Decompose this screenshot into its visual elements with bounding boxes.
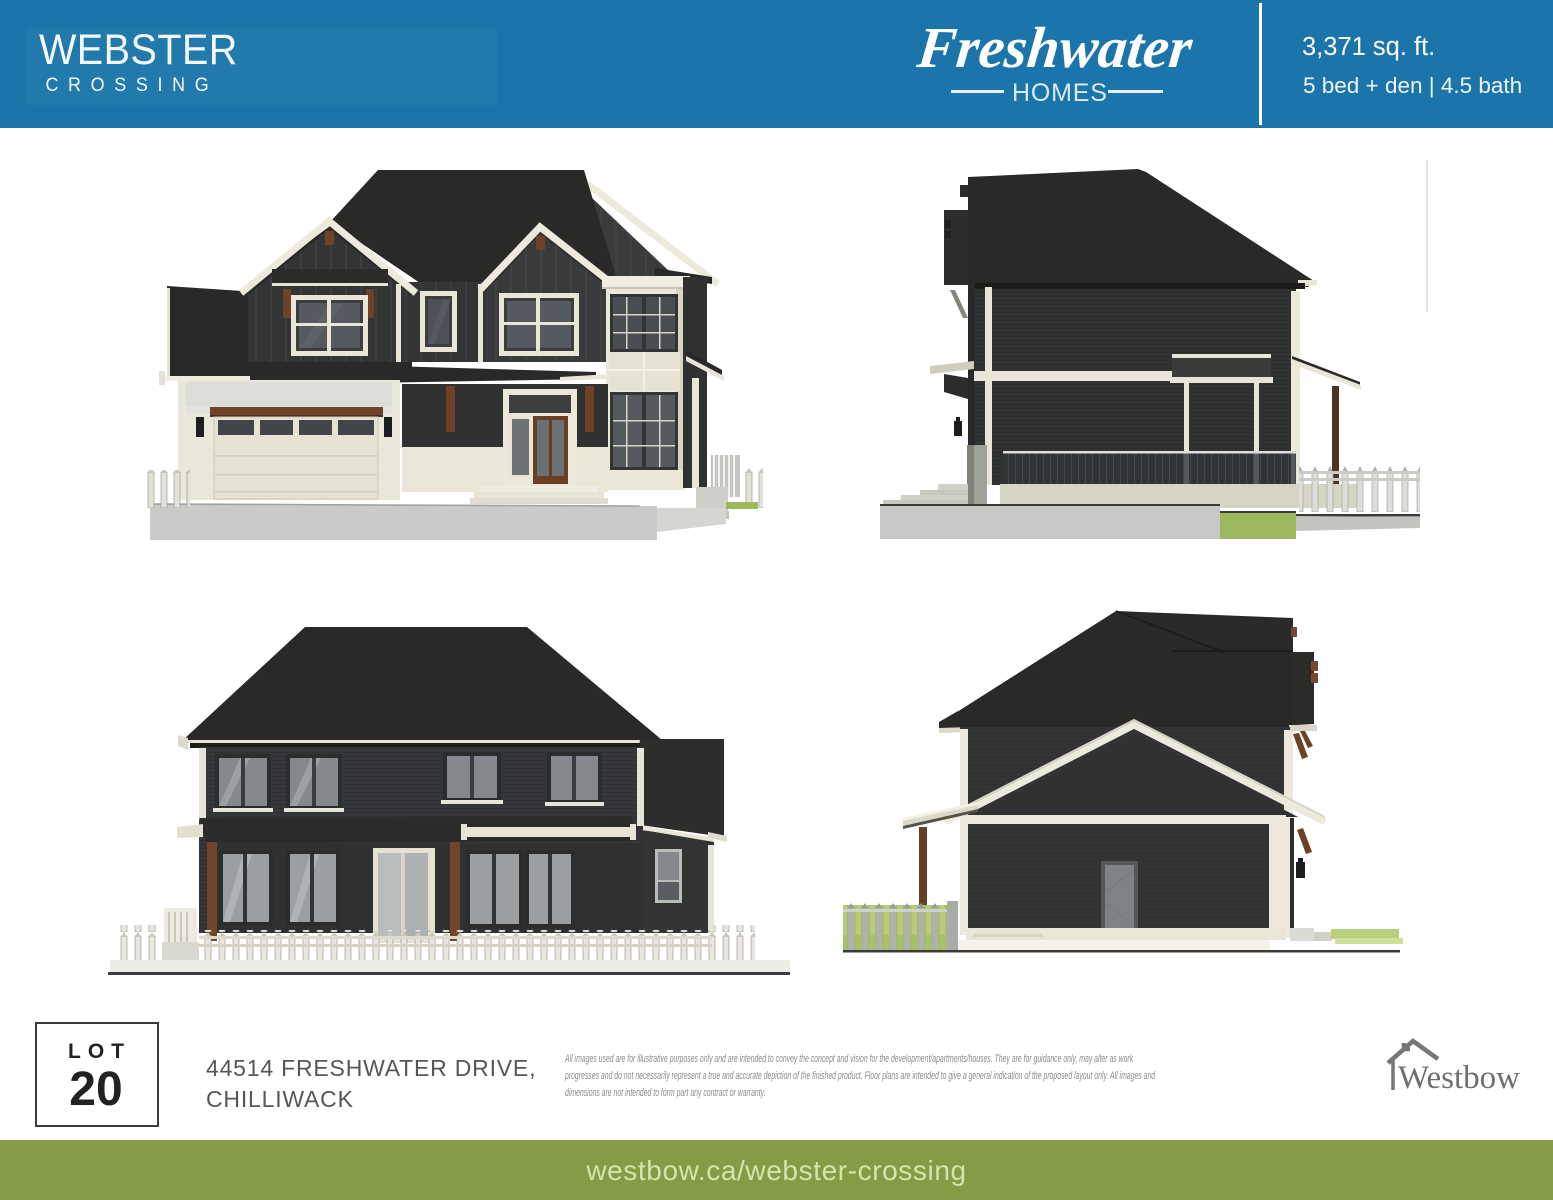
svg-text:Westbow: Westbow xyxy=(1398,1060,1520,1096)
